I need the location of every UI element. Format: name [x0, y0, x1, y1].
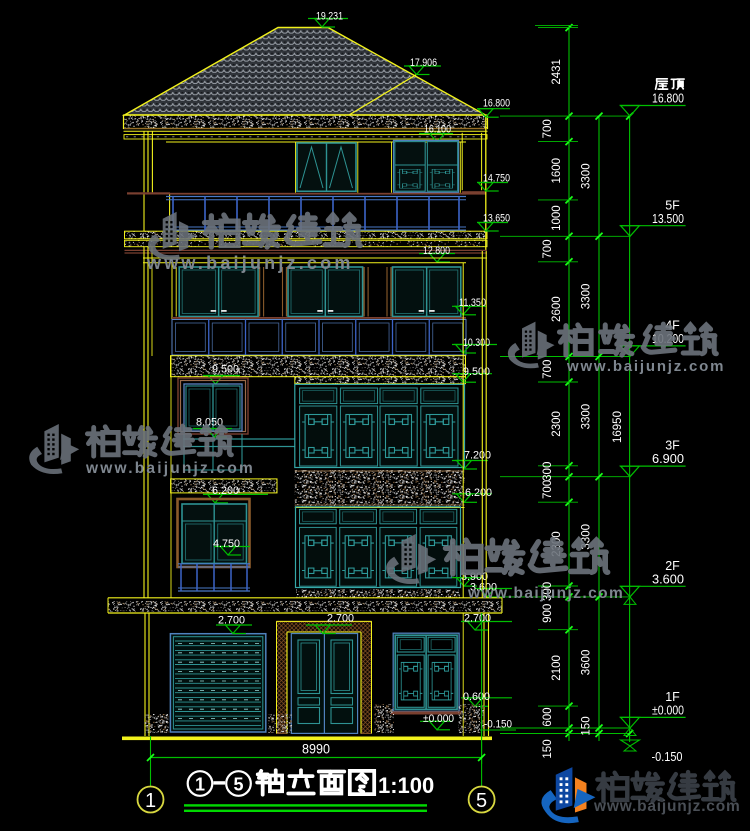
svg-text:600: 600 — [542, 707, 554, 726]
svg-text:5: 5 — [476, 790, 487, 812]
svg-text:12.800: 12.800 — [423, 245, 450, 257]
svg-text:2431: 2431 — [551, 59, 563, 85]
svg-text:1:100: 1:100 — [378, 773, 434, 798]
svg-text:6.900: 6.900 — [652, 452, 684, 466]
svg-text:3.600: 3.600 — [652, 572, 684, 586]
svg-text:±0.000: ±0.000 — [423, 713, 454, 725]
svg-text:www.baijunjz.com: www.baijunjz.com — [467, 585, 624, 602]
svg-text:9.500: 9.500 — [212, 364, 239, 376]
svg-text:3300: 3300 — [581, 163, 593, 189]
svg-text:www.baijunjz.com: www.baijunjz.com — [85, 460, 255, 477]
svg-text:1000: 1000 — [551, 205, 563, 231]
svg-text:2.700: 2.700 — [464, 613, 491, 625]
svg-text:17.906: 17.906 — [410, 57, 437, 69]
svg-text:16.800: 16.800 — [652, 92, 684, 106]
svg-text:150: 150 — [581, 716, 593, 735]
svg-text:7.200: 7.200 — [464, 450, 491, 462]
svg-text:1: 1 — [145, 790, 156, 812]
svg-text:5: 5 — [233, 775, 243, 795]
svg-text:16950: 16950 — [612, 411, 624, 443]
svg-text:3F: 3F — [665, 439, 680, 453]
svg-text:150: 150 — [542, 739, 554, 758]
svg-text:13.650: 13.650 — [483, 213, 510, 225]
svg-text:700: 700 — [542, 480, 554, 499]
svg-text:±0.000: ±0.000 — [652, 704, 684, 718]
svg-text:2F: 2F — [665, 559, 680, 573]
svg-text:2600: 2600 — [551, 296, 563, 322]
svg-text:3300: 3300 — [581, 284, 593, 310]
svg-text:6.200: 6.200 — [465, 487, 492, 499]
svg-text:www.baijunjz.com: www.baijunjz.com — [566, 358, 725, 375]
svg-text:0.600: 0.600 — [463, 691, 490, 703]
svg-text:2100: 2100 — [551, 655, 563, 681]
svg-text:700: 700 — [542, 119, 554, 138]
svg-text:16.100: 16.100 — [424, 124, 451, 136]
svg-text:13.500: 13.500 — [652, 212, 684, 226]
svg-text:19.231: 19.231 — [316, 11, 343, 23]
svg-text:-0.150: -0.150 — [652, 750, 683, 764]
svg-text:700: 700 — [542, 360, 554, 379]
svg-text:300: 300 — [542, 462, 554, 481]
svg-text:1600: 1600 — [551, 158, 563, 184]
svg-text:-0.150: -0.150 — [484, 719, 512, 731]
svg-text:8990: 8990 — [302, 742, 330, 757]
svg-text:2.700: 2.700 — [218, 615, 245, 627]
svg-text:3300: 3300 — [581, 404, 593, 430]
svg-text:700: 700 — [542, 239, 554, 258]
svg-text:14.750: 14.750 — [483, 173, 510, 185]
svg-text:5F: 5F — [665, 198, 680, 212]
svg-text:1F: 1F — [665, 690, 680, 704]
svg-text:2.700: 2.700 — [327, 613, 354, 625]
svg-text:4.750: 4.750 — [213, 538, 240, 550]
svg-text:900: 900 — [542, 604, 554, 623]
svg-text:2300: 2300 — [551, 411, 563, 437]
svg-text:www.baijunjz.com: www.baijunjz.com — [146, 253, 354, 273]
svg-text:16.800: 16.800 — [483, 98, 510, 110]
svg-text:6.200: 6.200 — [212, 485, 239, 497]
svg-text:www.baijunjz.com: www.baijunjz.com — [593, 798, 741, 815]
svg-text:3600: 3600 — [581, 650, 593, 676]
svg-text:1: 1 — [195, 775, 205, 795]
